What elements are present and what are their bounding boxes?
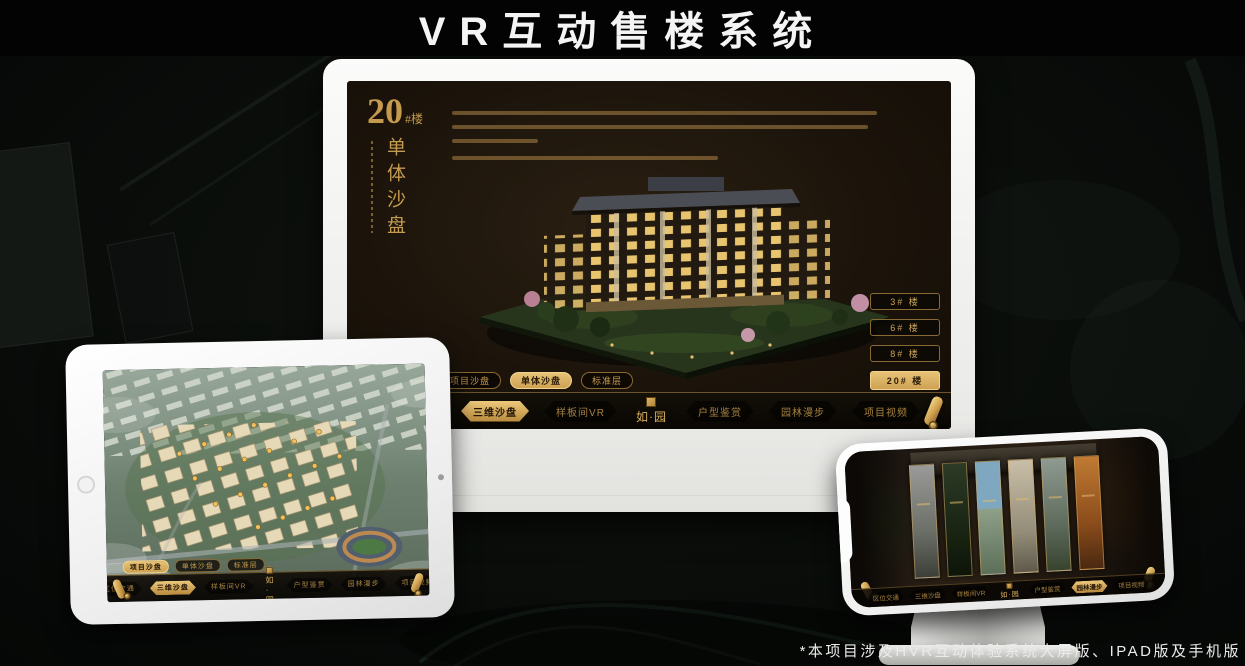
nav-item-unit-gallery[interactable]: 户型鉴赏	[286, 578, 332, 593]
gallery-panel[interactable]	[942, 462, 973, 577]
tab-single-sandtable[interactable]: 单体沙盘	[510, 372, 572, 389]
nav-item-showroom-vr[interactable]: 样板间VR	[951, 586, 990, 600]
brand-logo: 如·园	[1000, 582, 1020, 600]
brand-seal-icon	[1006, 582, 1012, 588]
footnote: *本项目涉及HVR互动体验系统大屏版、IPAD版及手机版	[800, 640, 1241, 661]
nav-item-location-traffic[interactable]: 区位交通	[868, 590, 905, 604]
nav-item-3d-sandtable[interactable]: 三维沙盘	[461, 401, 529, 422]
floor-button-20[interactable]: 20# 楼	[870, 371, 940, 390]
brand-logo: 如·园	[265, 566, 275, 602]
gallery-panel[interactable]	[1041, 457, 1072, 572]
title-band: VR互动售楼系统	[0, 0, 1245, 56]
nav-item-garden-walk[interactable]: 园林漫步	[769, 401, 837, 422]
tab-project-sandtable[interactable]: 项目沙盘	[123, 560, 169, 574]
nav-item-unit-gallery[interactable]: 户型鉴赏	[1029, 582, 1066, 596]
unit-subtitle-vertical: 单体沙盘	[381, 137, 408, 241]
nav-item-3d-sandtable[interactable]: 三维沙盘	[909, 588, 946, 602]
nav-item-garden-walk[interactable]: 园林漫步	[340, 576, 386, 591]
nav-item-showroom-vr[interactable]: 样板间VR	[544, 401, 617, 422]
tab-single-sandtable[interactable]: 单体沙盘	[175, 559, 221, 573]
description-line	[452, 111, 877, 115]
tablet-screen: 项目沙盘 单体沙盘 标准层 区位交通 三维沙盘 样板间VR 如·园 户型鉴赏 园…	[103, 364, 430, 603]
brand-seal-icon	[266, 566, 273, 573]
unit-number: 20	[367, 91, 403, 131]
brand-logo-text: 如·园	[636, 408, 667, 425]
floor-selector: 3# 楼 6# 楼 8# 楼 20# 楼	[870, 293, 940, 390]
interior-left-pillar	[844, 449, 914, 608]
gallery-panel[interactable]	[909, 464, 940, 579]
nav-item-garden-walk[interactable]: 园林漫步	[1071, 580, 1108, 594]
nav-item-project-video[interactable]: 项目视频	[1113, 578, 1150, 592]
page-title: VR互动售楼系统	[419, 0, 827, 57]
description-line	[452, 125, 868, 129]
tab-standard-floor[interactable]: 标准层	[581, 372, 633, 389]
nav-item-unit-gallery[interactable]: 户型鉴赏	[686, 401, 754, 422]
nav-item-3d-sandtable[interactable]: 三维沙盘	[150, 580, 196, 595]
scroll-handle-icon[interactable]	[923, 395, 944, 427]
floor-button-3[interactable]: 3# 楼	[870, 293, 940, 310]
brand-logo: 如·园	[636, 397, 667, 425]
tab-standard-floor[interactable]: 标准层	[227, 558, 265, 572]
nav-item-project-video[interactable]: 项目视频	[852, 401, 920, 422]
promo-canvas: VR互动售楼系统 20#楼 单体沙盘	[0, 0, 1245, 666]
scene-gallery	[909, 455, 1105, 579]
floor-button-6[interactable]: 6# 楼	[870, 319, 940, 336]
building-render	[462, 147, 902, 379]
nav-item-showroom-vr[interactable]: 样板间VR	[204, 579, 254, 594]
brand-logo-text: 如·园	[1000, 589, 1020, 600]
description-line	[452, 139, 538, 143]
unit-subtitle-ornament	[371, 141, 373, 233]
brand-seal-icon	[646, 397, 656, 407]
view-tabs: 项目沙盘 单体沙盘 标准层	[439, 372, 633, 389]
unit-title: 20#楼	[367, 93, 423, 129]
brand-logo-text: 如·园	[265, 574, 275, 602]
gallery-panel[interactable]	[1008, 458, 1039, 573]
floor-button-8[interactable]: 8# 楼	[870, 345, 940, 362]
gallery-panel[interactable]	[975, 460, 1006, 575]
phone-mockup: 区位交通 三维沙盘 样板间VR 如·园 户型鉴赏 园林漫步 项目视频	[835, 427, 1176, 616]
unit-suffix: #楼	[405, 112, 423, 126]
tablet-mockup: 项目沙盘 单体沙盘 标准层 区位交通 三维沙盘 样板间VR 如·园 户型鉴赏 园…	[65, 337, 455, 625]
tablet-camera-dot	[438, 474, 444, 480]
phone-screen: 区位交通 三维沙盘 样板间VR 如·园 户型鉴赏 园林漫步 项目视频	[844, 436, 1166, 608]
